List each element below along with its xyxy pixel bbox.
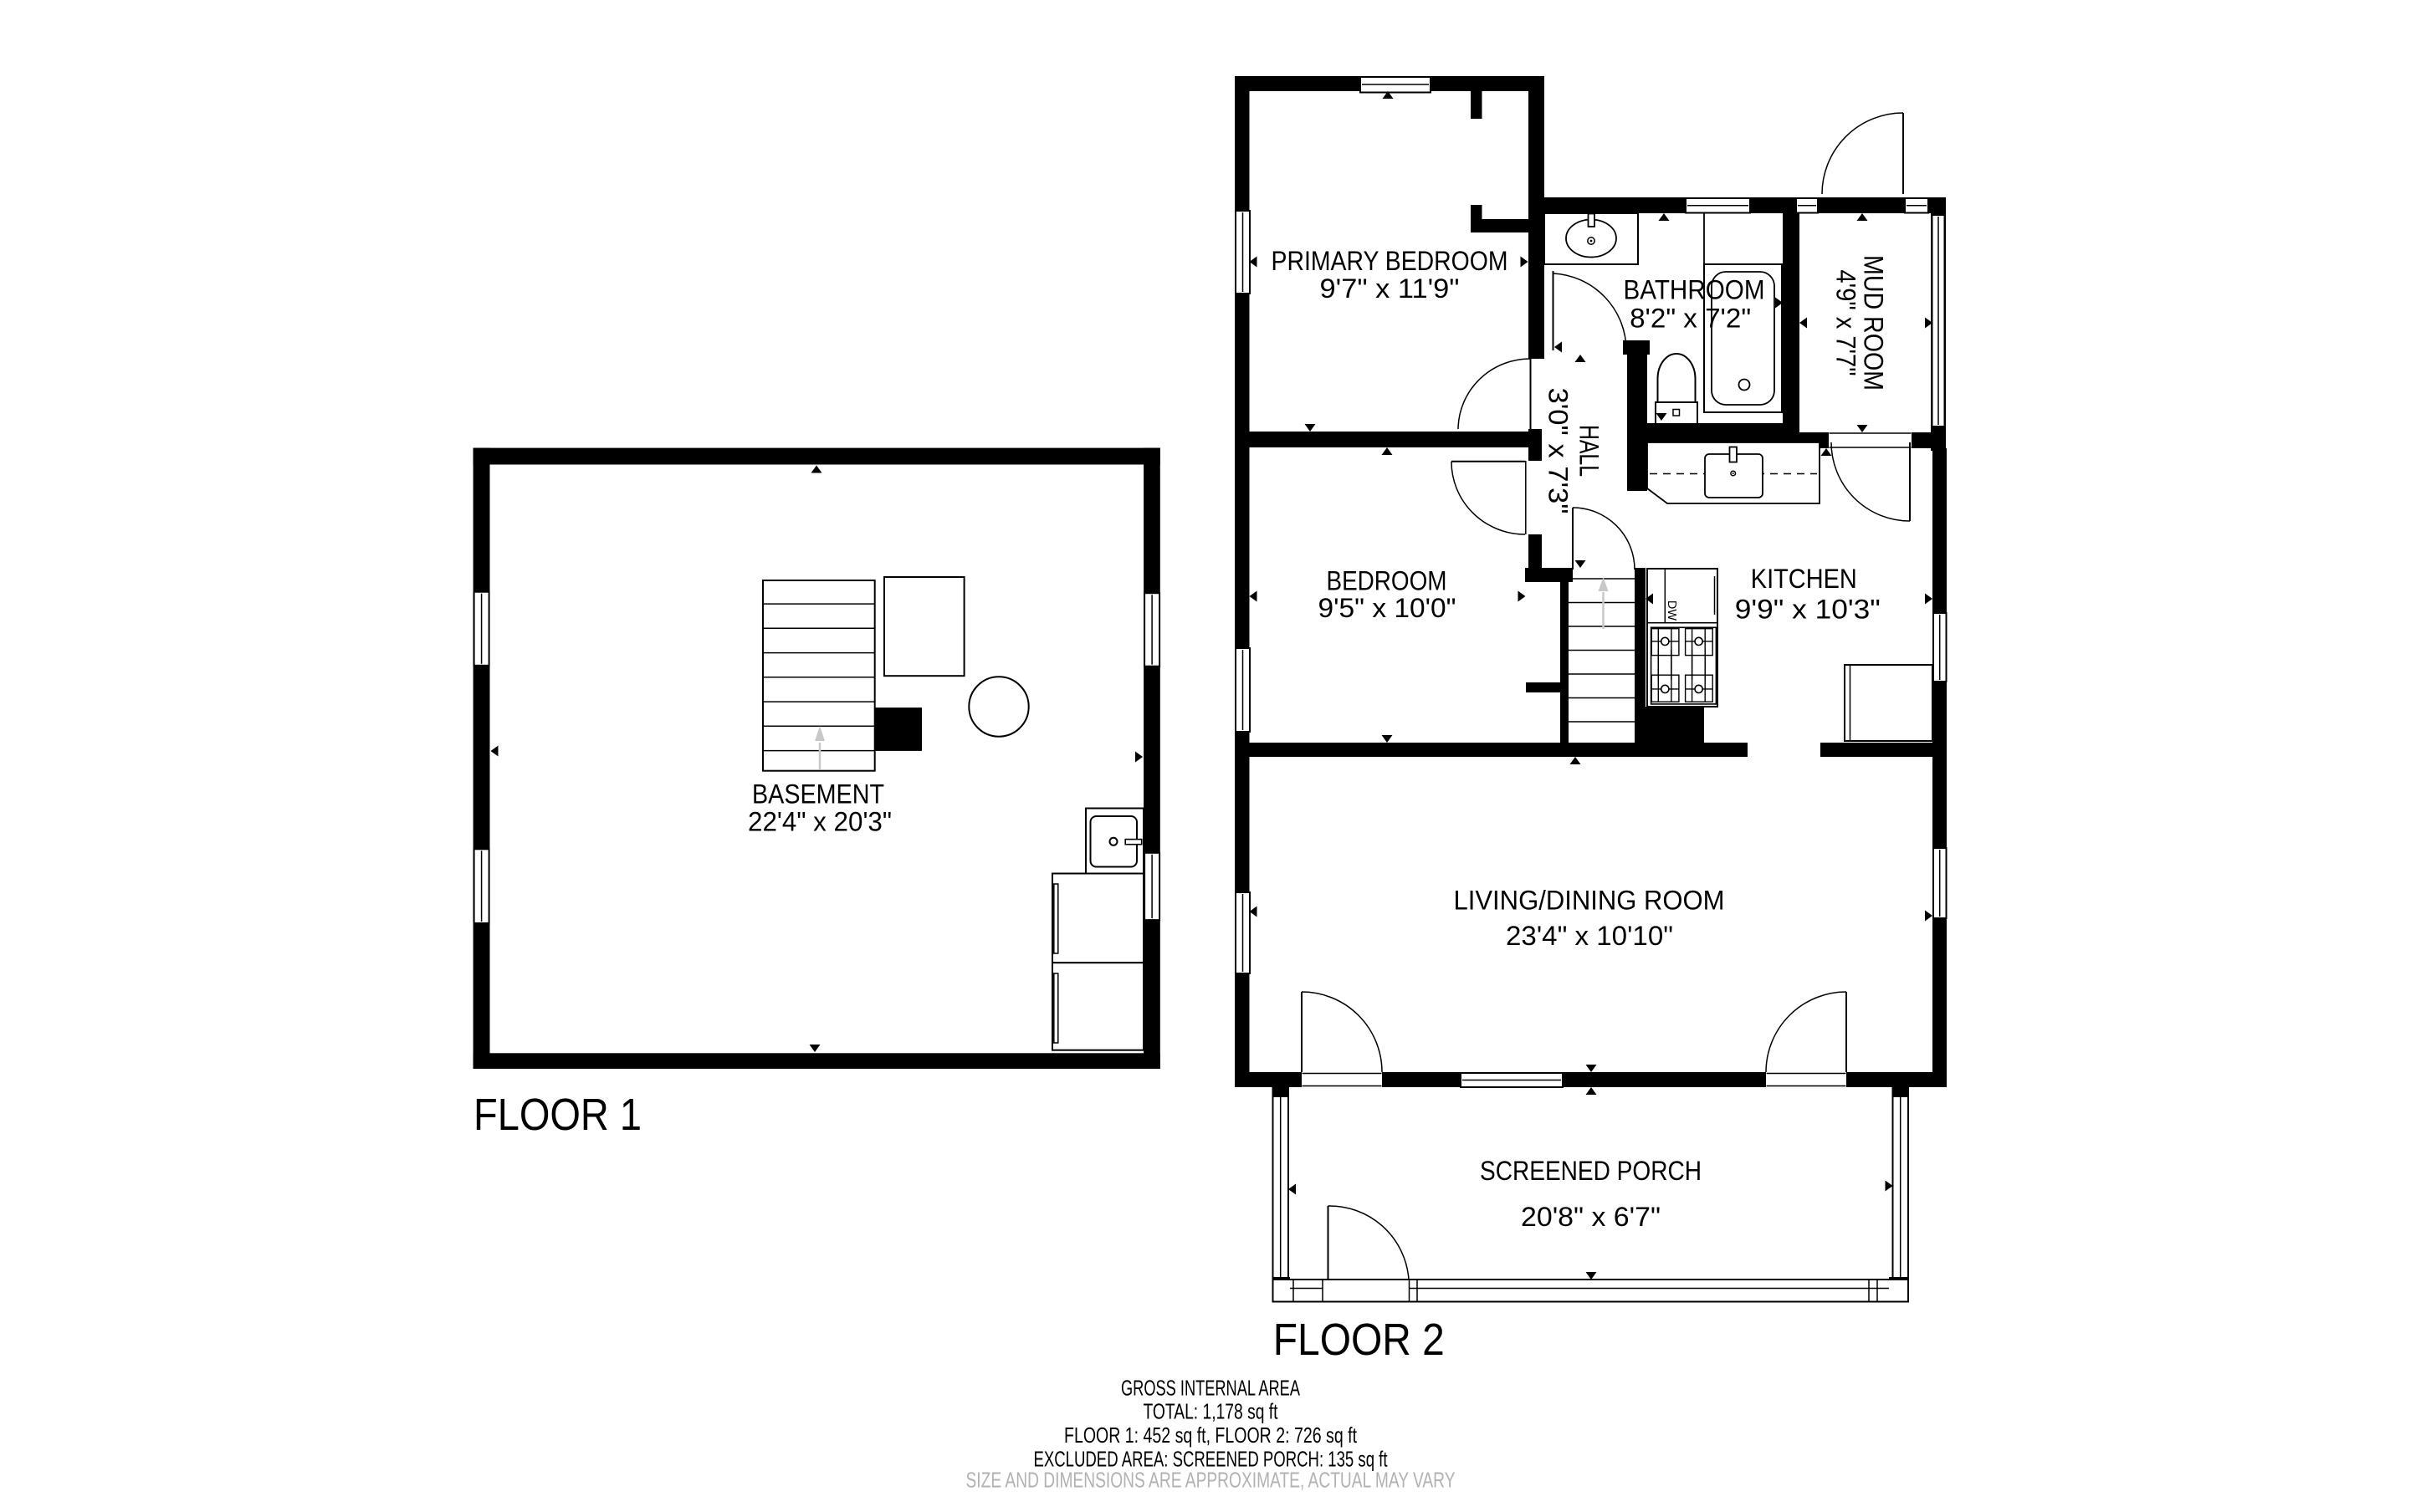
svg-text:LIVING/DINING ROOM: LIVING/DINING ROOM	[1454, 886, 1725, 916]
svg-text:8'2" x 7'2": 8'2" x 7'2"	[1630, 304, 1751, 334]
svg-text:SCREENED PORCH: SCREENED PORCH	[1480, 1156, 1702, 1186]
svg-text:TOTAL: 1,178 sq ft: TOTAL: 1,178 sq ft	[1144, 1399, 1279, 1424]
svg-text:BASEMENT: BASEMENT	[752, 779, 884, 810]
svg-text:BATHROOM: BATHROOM	[1624, 274, 1765, 304]
svg-text:HALL: HALL	[1574, 425, 1605, 477]
svg-text:9'5" x 10'0": 9'5" x 10'0"	[1318, 593, 1456, 623]
svg-text:3'0" x 7'3": 3'0" x 7'3"	[1543, 388, 1574, 514]
svg-text:FLOOR 1: 452 sq ft, FLOOR 2: 7: FLOOR 1: 452 sq ft, FLOOR 2: 726 sq ft	[1064, 1423, 1358, 1448]
svg-text:4'9" x 7'7": 4'9" x 7'7"	[1831, 270, 1861, 376]
svg-text:PRIMARY BEDROOM: PRIMARY BEDROOM	[1272, 246, 1508, 276]
svg-text:FLOOR 1: FLOOR 1	[473, 1090, 642, 1140]
svg-text:GROSS INTERNAL AREA: GROSS INTERNAL AREA	[1121, 1376, 1300, 1401]
svg-text:MUD ROOM: MUD ROOM	[1859, 255, 1889, 391]
svg-text:9'9" x 10'3": 9'9" x 10'3"	[1735, 595, 1881, 625]
svg-text:BEDROOM: BEDROOM	[1327, 566, 1447, 596]
svg-text:20'8" x 6'7": 20'8" x 6'7"	[1521, 1202, 1661, 1232]
svg-text:9'7" x 11'9": 9'7" x 11'9"	[1320, 273, 1460, 304]
svg-text:FLOOR 2: FLOOR 2	[1273, 1315, 1445, 1365]
svg-text:DW: DW	[1665, 600, 1678, 621]
svg-text:KITCHEN: KITCHEN	[1751, 564, 1857, 594]
svg-text:23'4" x 10'10": 23'4" x 10'10"	[1506, 921, 1673, 951]
svg-text:22'4" x 20'3": 22'4" x 20'3"	[748, 807, 892, 837]
svg-text:SIZE AND DIMENSIONS ARE APPROX: SIZE AND DIMENSIONS ARE APPROXIMATE, ACT…	[966, 1468, 1456, 1493]
